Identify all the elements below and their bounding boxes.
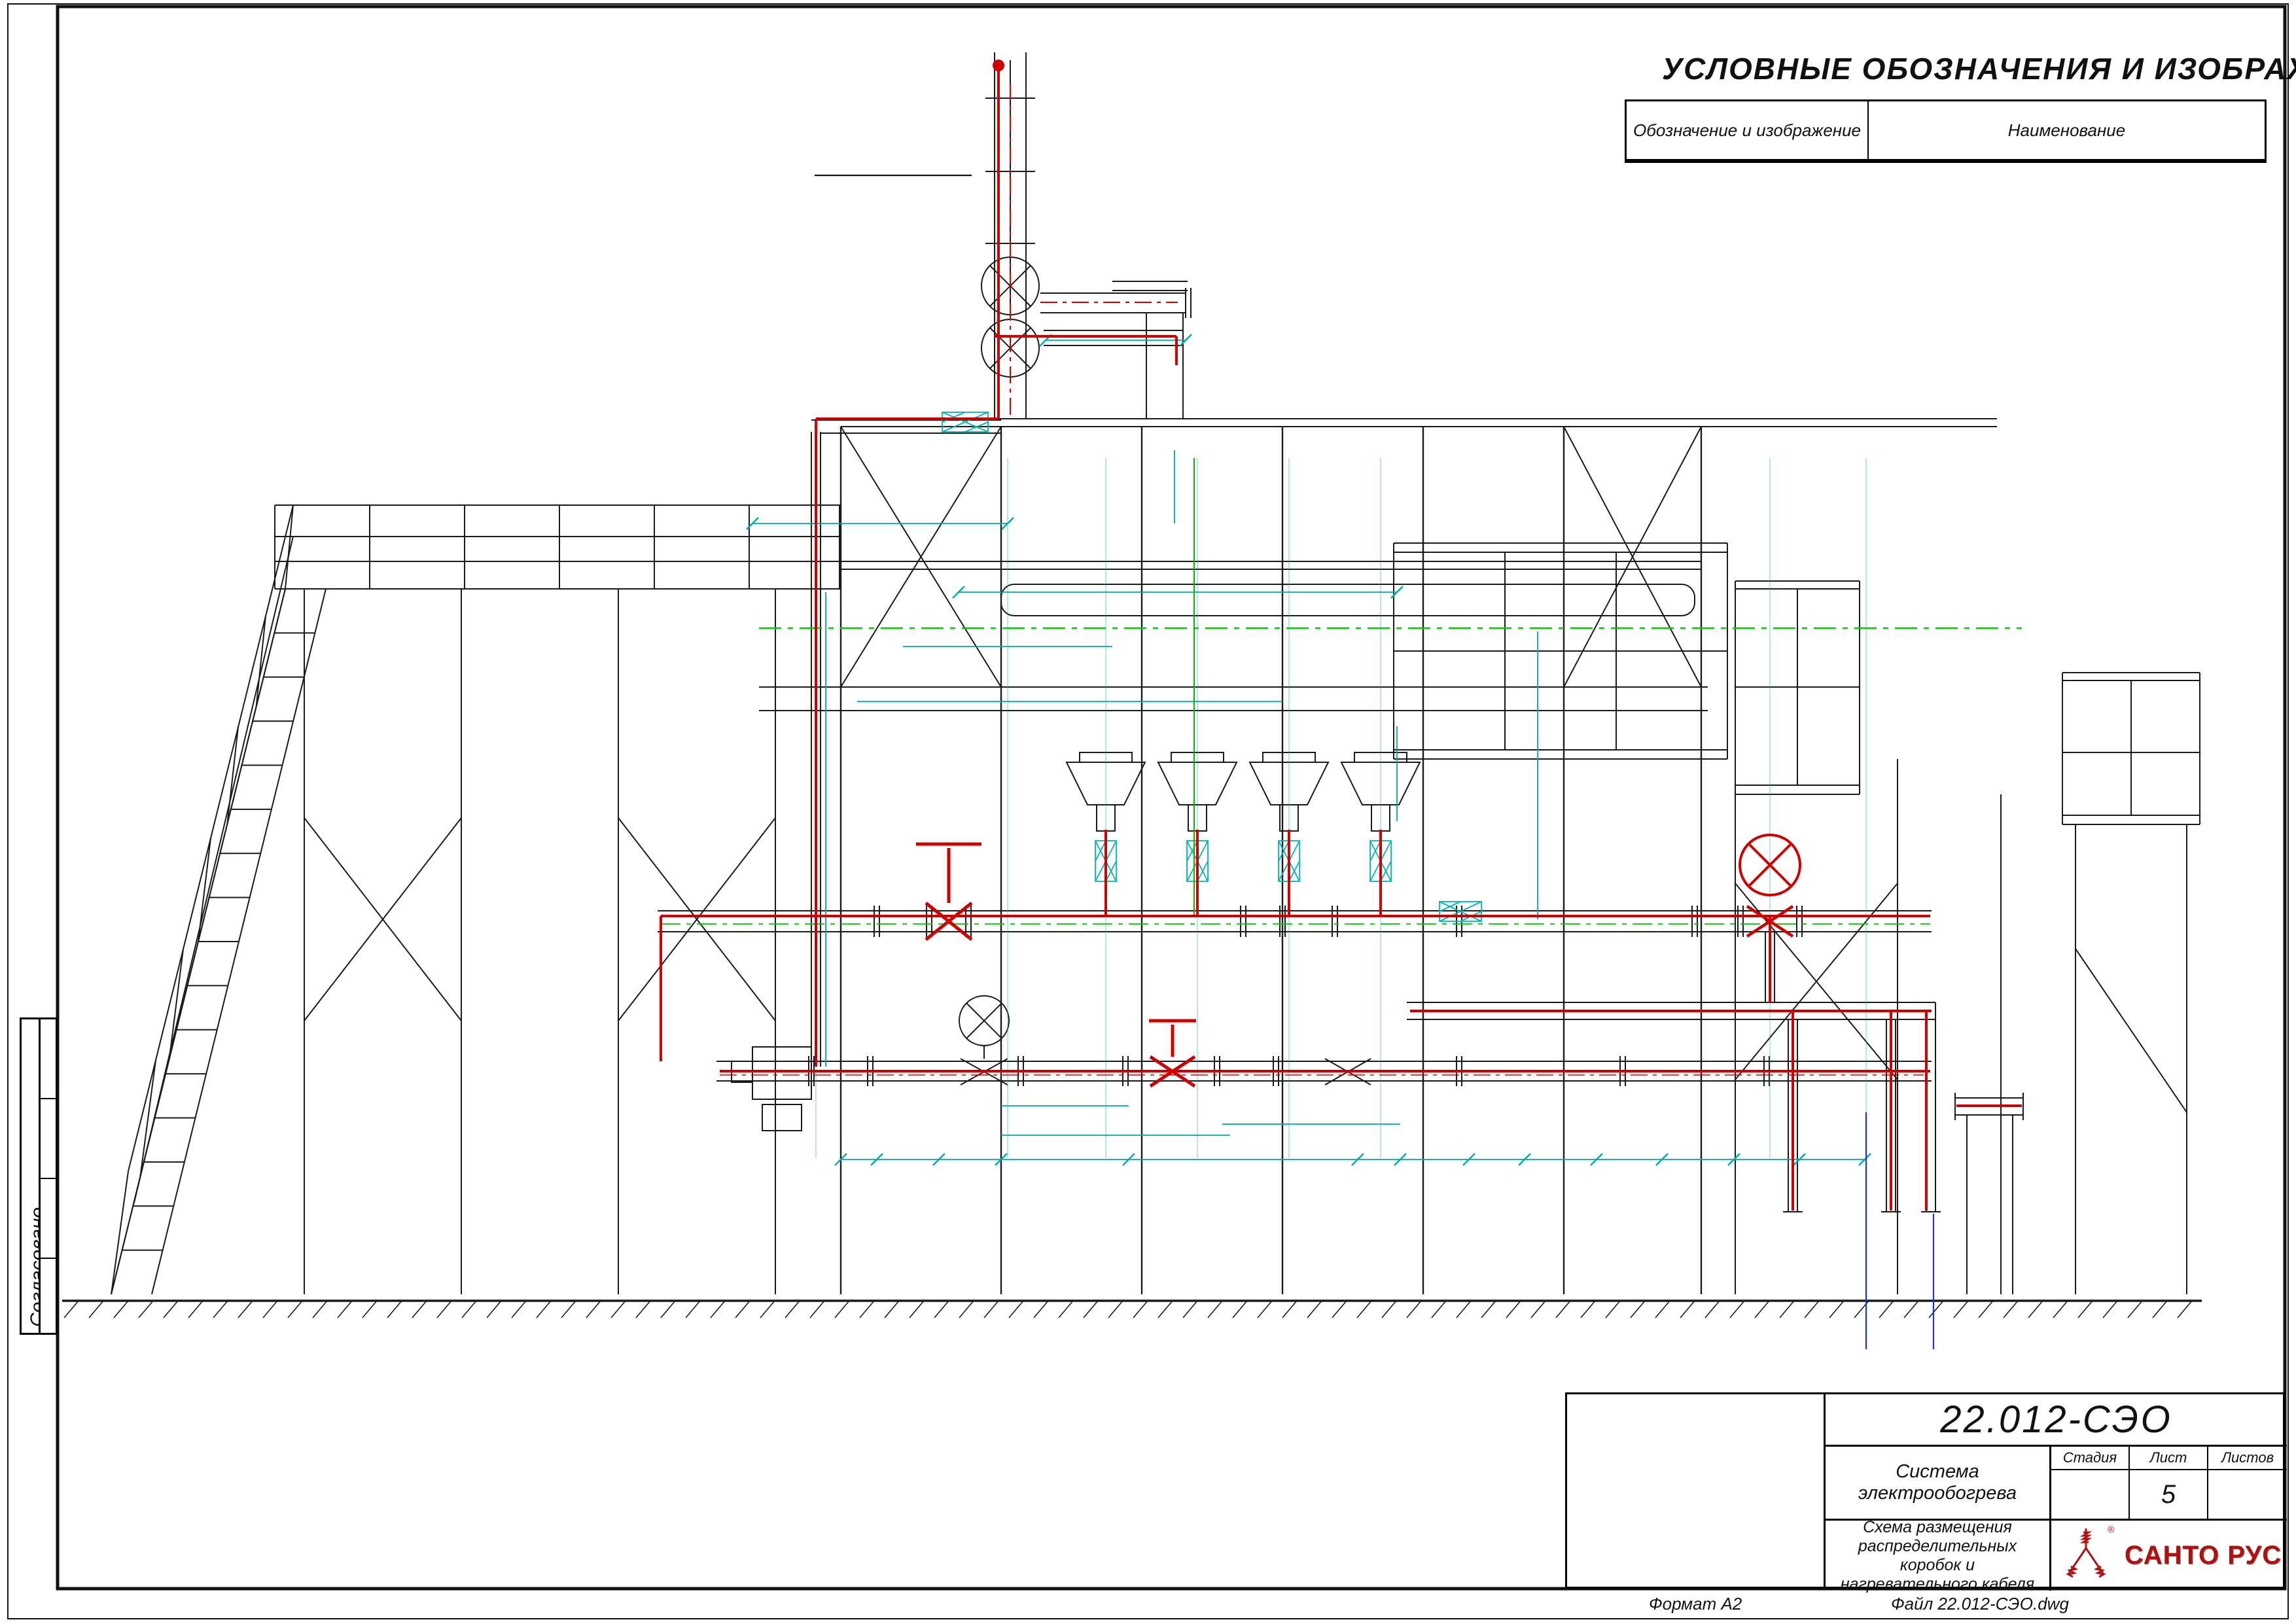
title-block-revision-table	[1567, 1394, 1826, 1587]
legend-col-symbol: Обозначение и изображение	[1627, 101, 1869, 159]
stage-label: Стадия	[2051, 1447, 2130, 1469]
sheet-frame	[58, 7, 2285, 1589]
cable-gland-hatch	[942, 412, 1481, 921]
legend-title: УСЛОВНЫЕ ОБОЗНАЧЕНИЯ И ИЗОБРАЖЕНИЯ	[1662, 51, 2270, 86]
scheme-canvas	[0, 0, 2296, 1624]
cable-gland-hatch-box	[942, 412, 988, 432]
sheets-label: Листов	[2208, 1447, 2287, 1469]
service-lines	[1866, 1112, 1934, 1349]
structure-lines	[62, 52, 2202, 1318]
stage-value	[2051, 1470, 2130, 1519]
sheet-number: 5	[2130, 1470, 2208, 1519]
company-name: САНТО РУС	[2125, 1541, 2282, 1570]
drawing-sheet: { "legend": { "title": "УСЛОВНЫЕ ОБОЗНАЧ…	[0, 0, 2296, 1624]
svg-text:®: ®	[2108, 1524, 2115, 1534]
heating-cable-lines	[661, 60, 2022, 1210]
title-block: 22.012-СЭО Система электрообогрева Схема…	[1565, 1392, 2285, 1589]
company-logo: ® САНТО РУС	[2051, 1519, 2287, 1591]
legend-col-name: Наименование	[1869, 101, 2265, 159]
agreed-stamp-cells	[39, 1017, 58, 1335]
legend-table: Обозначение и изображение Наименование	[1625, 99, 2267, 163]
sheet-outer-border	[8, 4, 2288, 1619]
logo-mark-icon: ®	[2057, 1523, 2115, 1589]
sheet-label: Лист	[2130, 1447, 2208, 1469]
legend-header-row: Обозначение и изображение Наименование	[1627, 101, 2265, 161]
file-note: Файл 22.012-СЭО.dwg	[1891, 1594, 2069, 1614]
document-number: 22.012-СЭО	[1826, 1394, 2287, 1447]
sheets-value	[2208, 1470, 2287, 1519]
stage-sheet-table: Стадия Лист Листов 5	[2051, 1447, 2287, 1519]
projection-lines	[816, 458, 1866, 1158]
sheet-title: Схема размещения распределительных короб…	[1826, 1519, 2051, 1591]
format-note: Формат А2	[1649, 1594, 1742, 1614]
project-title: Система электрообогрева	[1826, 1447, 2051, 1519]
